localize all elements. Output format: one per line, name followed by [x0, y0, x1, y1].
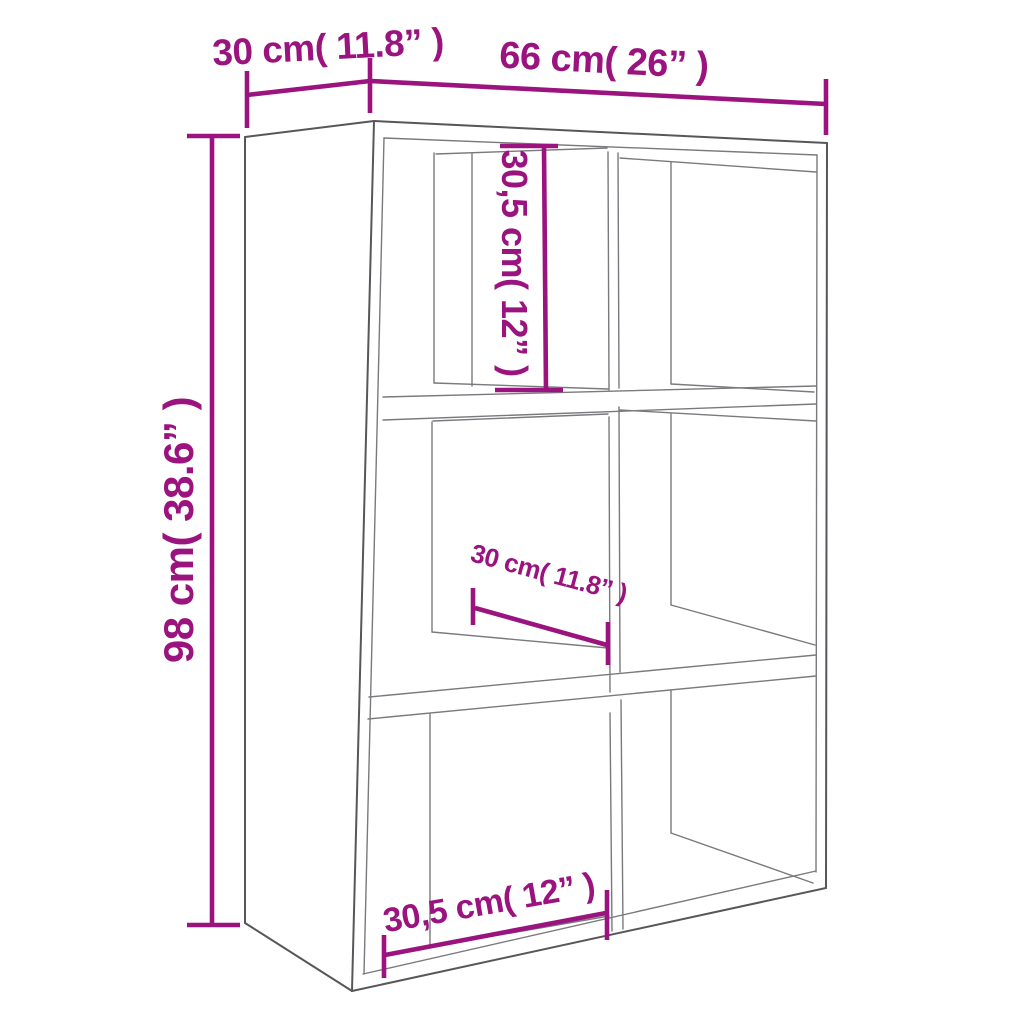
dimension-diagram: 30 cm( 11.8” ) 66 cm( 26” ) 98 cm( 38.6”… — [0, 0, 1024, 1024]
width-dimension-line — [370, 79, 826, 135]
compartment-depth-dimension-line — [473, 588, 608, 665]
dimension-label-compartment-height: 30,5 cm( 12” ) — [496, 149, 532, 376]
dimension-label-height: 98 cm( 38.6” ) — [158, 397, 200, 663]
dimension-label-width: 66 cm( 26” ) — [498, 37, 709, 86]
